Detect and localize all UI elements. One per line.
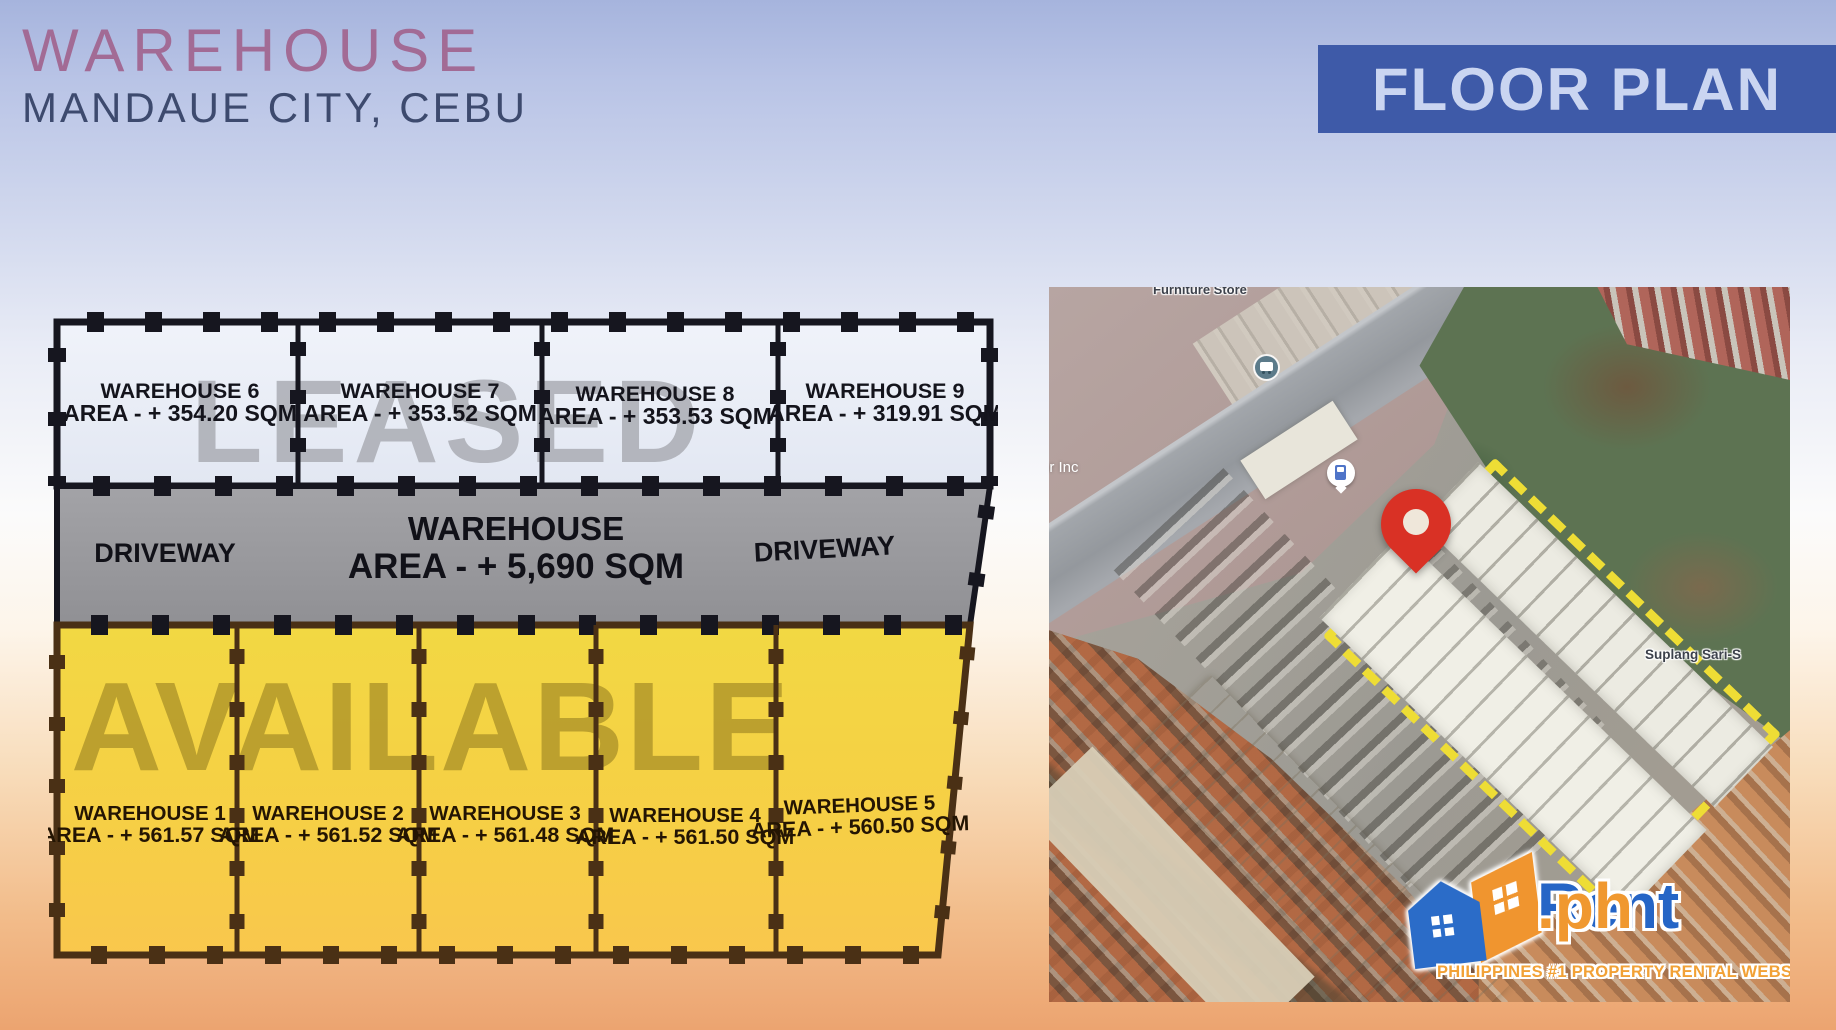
driveway-left-label: DRIVEWAY: [94, 538, 236, 568]
rentph-tagline: PHILIPPINES #1 PROPERTY RENTAL WEBSITE: [1437, 963, 1790, 982]
unit-8-area: AREA - + 353.53 SQM: [538, 403, 772, 429]
floor-plan-banner: FLOOR PLAN: [1318, 45, 1836, 133]
main-unit-area: AREA - + 5,690 SQM: [348, 547, 684, 586]
unit-4-name: WAREHOUSE 4: [609, 804, 761, 827]
unit-2-name: WAREHOUSE 2: [252, 802, 404, 825]
map-label-sari: Suplang Sari-S: [1645, 647, 1741, 662]
unit-6-area: AREA - + 354.20 SQM: [63, 400, 297, 426]
map-label-furniture-store: Furniture Store: [1153, 287, 1247, 297]
unit-1-name: WAREHOUSE 1: [74, 802, 226, 825]
page-title: WAREHOUSE: [22, 16, 485, 85]
satellite-map: Furniture Store or Inc Suplang Sari-S Re…: [1049, 287, 1790, 1002]
brand-suffix: .ph: [1537, 869, 1633, 943]
floor-plan-diagram: LEASED AVAILABLE: [48, 310, 998, 965]
slide: WAREHOUSE MANDAUE CITY, CEBU FLOOR PLAN …: [0, 0, 1836, 1030]
map-label-inc: or Inc: [1049, 459, 1079, 476]
gas-station-icon: [1327, 459, 1355, 487]
main-unit-name: WAREHOUSE: [408, 510, 624, 547]
unit-9-area: AREA - + 319.91 SQM: [768, 400, 998, 426]
location-pin-icon: [1379, 485, 1453, 579]
rentph-logo: Rent.ph PHILIPPINES #1 PROPERTY RENTAL W…: [1385, 853, 1790, 1002]
unit-3-name: WAREHOUSE 3: [429, 802, 581, 825]
bus-stop-icon: [1255, 356, 1278, 379]
unit-7-area: AREA - + 353.52 SQM: [303, 400, 537, 426]
available-watermark: AVAILABLE: [71, 656, 791, 797]
page-subtitle: MANDAUE CITY, CEBU: [22, 84, 528, 132]
floor-plan-banner-label: FLOOR PLAN: [1372, 55, 1782, 124]
